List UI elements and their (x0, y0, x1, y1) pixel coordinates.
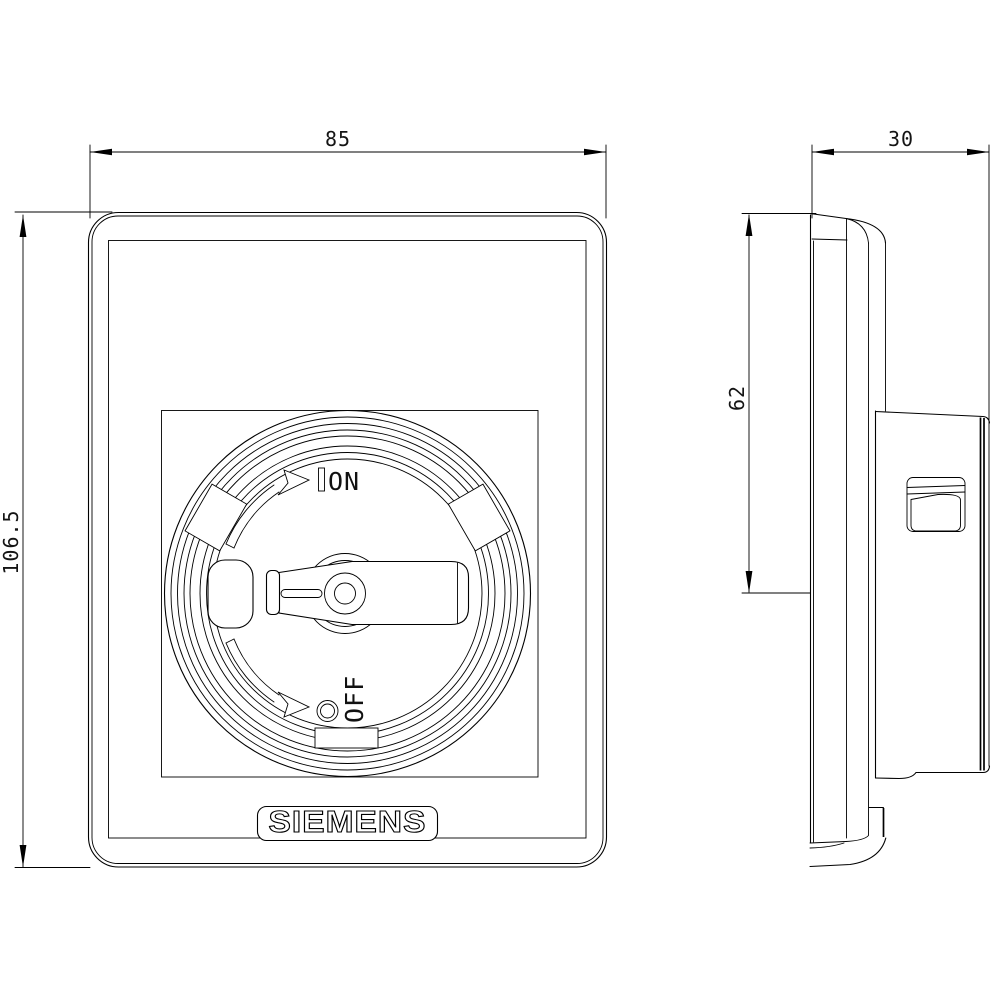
side-depth-dimension: 30 (812, 127, 989, 766)
handle-stop-block (208, 560, 253, 628)
arrowhead-down-icon (746, 571, 753, 593)
side-view: 30 62 (725, 127, 990, 867)
arrowhead-right-icon (584, 149, 606, 156)
front-enclosure-outline (89, 213, 607, 868)
arrowhead-up-icon (20, 215, 27, 237)
arrowhead-left-icon (90, 149, 112, 156)
front-view: 85 106.5 (0, 127, 607, 868)
technical-drawing-page: 85 106.5 (0, 0, 1000, 1000)
dimension-drawing-svg: 85 106.5 (0, 0, 1000, 1000)
din-rail-clip (907, 478, 965, 532)
arrowhead-right-icon (967, 149, 989, 156)
handle-end-cap (267, 571, 280, 615)
padlock-tab (315, 728, 378, 748)
off-label: OFF (340, 675, 369, 723)
siemens-logo: SIEMENS (258, 804, 438, 841)
side-cover-profile (810, 214, 886, 867)
on-position-mark-icon (319, 468, 325, 491)
arrowhead-down-icon (20, 845, 27, 867)
front-width-dimension: 85 (90, 127, 606, 218)
side-depth-value: 30 (888, 127, 914, 151)
front-height-value: 106.5 (0, 509, 23, 574)
side-switch-body (876, 411, 990, 779)
rotary-handle (267, 562, 469, 625)
front-width-value: 85 (325, 127, 351, 151)
arrowhead-left-icon (812, 149, 834, 156)
side-handle-height-value: 62 (725, 385, 749, 411)
siemens-logo-text: SIEMENS (269, 804, 427, 839)
on-label: ON (328, 467, 360, 496)
side-handle-height-dimension: 62 (725, 214, 816, 594)
arrowhead-up-icon (746, 214, 753, 236)
